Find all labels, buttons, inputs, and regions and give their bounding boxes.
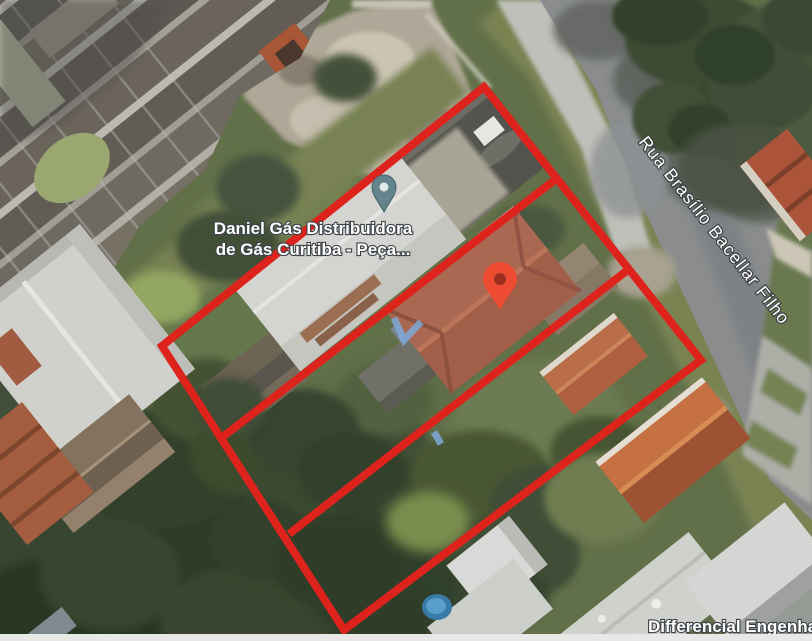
svg-text:de Gás Curitiba - Peça...: de Gás Curitiba - Peça...	[216, 240, 411, 259]
svg-text:Daniel Gás Distribuidora: Daniel Gás Distribuidora	[214, 219, 413, 238]
svg-text:Differencial Engenha: Differencial Engenha	[648, 617, 812, 636]
